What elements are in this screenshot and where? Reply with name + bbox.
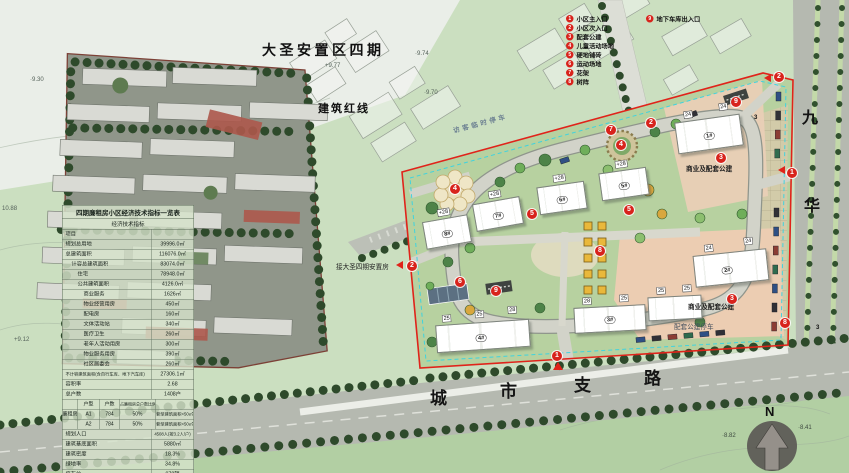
connect-label: 接大圣四期安置房 bbox=[336, 262, 389, 271]
legend-num-icon: 6 bbox=[566, 60, 574, 68]
height-tag: 25 bbox=[620, 294, 630, 302]
entrance-arrow-icon bbox=[396, 261, 403, 269]
entrance-arrow-icon bbox=[764, 74, 771, 82]
elevation-label: ·9.74 bbox=[415, 50, 429, 57]
marker-main-entrance: 1 bbox=[552, 351, 562, 361]
red-line-label: 建筑红线 bbox=[318, 100, 370, 116]
building-label: 2# bbox=[722, 266, 734, 275]
building-label: 4# bbox=[475, 334, 487, 342]
road-name-char: 九 bbox=[802, 104, 818, 128]
table-row: 规划人口4508人(按3.2人/户) bbox=[63, 430, 194, 440]
marker-children-area: 4 bbox=[616, 140, 626, 150]
north-arrow-icon bbox=[747, 421, 797, 471]
legend-num-icon: 4 bbox=[566, 42, 574, 50]
table-unit-header: 户型 户数 占廉租房总户数比例 bbox=[63, 400, 194, 410]
building-label: 6# bbox=[556, 196, 568, 205]
table-row: 医疗卫生260㎡ bbox=[63, 330, 194, 340]
marker-pergola: 7 bbox=[606, 125, 616, 135]
table-row: 项目 bbox=[63, 230, 194, 240]
marker-children-area: 4 bbox=[450, 184, 460, 194]
parcel-number: 3 bbox=[816, 324, 819, 331]
legend-num-icon: 1 bbox=[566, 15, 574, 23]
elevation-label: +9.77 bbox=[325, 62, 340, 69]
elevation-label: +9.12 bbox=[14, 336, 29, 343]
legend-num-icon: 3 bbox=[566, 33, 574, 41]
legend-num-icon: 9 bbox=[646, 15, 654, 23]
table-row: 配电房160㎡ bbox=[63, 310, 194, 320]
page-title: 大圣安置区四期 bbox=[262, 40, 385, 60]
site-plan-canvas: 大圣安置区四期 建筑红线 访客临时停车 接大圣四期安置房 商业及配套公建 商业及… bbox=[0, 0, 849, 473]
table-unit-row: A2 784 50% 套型建筑面积<50㎡ bbox=[63, 420, 194, 430]
building-label: 1# bbox=[703, 131, 715, 140]
legend-num-icon: 7 bbox=[566, 69, 574, 77]
table-row: 住宅78948.0㎡ bbox=[63, 270, 194, 280]
height-tag: 25 bbox=[682, 284, 692, 292]
height-tag: 28 bbox=[582, 297, 592, 305]
marker-garage-entrance: 9 bbox=[491, 286, 501, 296]
height-tag: 25 bbox=[442, 314, 452, 322]
road-name-char: 华 bbox=[804, 192, 820, 216]
table-row: 文体活动站340㎡ bbox=[63, 320, 194, 330]
building-label: 5# bbox=[618, 182, 630, 191]
height-tag: 28 bbox=[508, 306, 518, 314]
marker-paving: 5 bbox=[624, 205, 634, 215]
table-row: 社区居委会260㎡ bbox=[63, 360, 194, 370]
table-row: 建筑基底面积5880㎡ bbox=[63, 440, 194, 450]
table-row: 总建筑面积116076.0㎡ bbox=[63, 250, 194, 260]
building-label: 8# bbox=[441, 229, 453, 238]
marker-main-entrance: 1 bbox=[787, 168, 797, 178]
height-tag: 25 bbox=[656, 287, 666, 295]
marker-garage-entrance: 9 bbox=[731, 97, 741, 107]
table-row: 规划总用地39996.0㎡ bbox=[63, 240, 194, 250]
public-parking-label: 配套公建停车 bbox=[674, 322, 714, 331]
legend-item: 8树阵 bbox=[566, 77, 589, 87]
height-tag: 24 bbox=[718, 102, 728, 111]
height-tag: 25 bbox=[475, 310, 485, 318]
building-3: 28 25 3# bbox=[573, 304, 646, 334]
entrance-arrow-icon bbox=[778, 166, 785, 174]
legend-num-icon: 8 bbox=[566, 78, 574, 86]
economic-indicator-table: 四期廉租房小区经济技术指标一览表 经济技术指标 项目 规划总用地39996.0㎡… bbox=[62, 205, 194, 473]
elevation-label: 10.88 bbox=[2, 205, 17, 212]
entrance-arrow-icon bbox=[553, 362, 563, 370]
table-row: 不计容建筑面积(含自行车库、地下汽车库)27306.1㎡ bbox=[63, 370, 194, 380]
road-name-char: 路 bbox=[644, 364, 661, 389]
table-row: 总户数1408户 bbox=[63, 390, 194, 400]
marker-sports-field: 6 bbox=[455, 277, 465, 287]
table-row: 建筑密度18.3% bbox=[63, 450, 194, 460]
table-row: 公共建筑面积4126.0㎡ bbox=[63, 280, 194, 290]
right-road bbox=[793, 0, 849, 352]
marker-public-building: 3 bbox=[716, 153, 726, 163]
table-row: 物业经营用房450㎡ bbox=[63, 300, 194, 310]
commercial-label-north: 商业及配套公建 bbox=[686, 164, 732, 173]
table-unit-row: 廉租房 A1 784 50% 套型建筑面积<50㎡ bbox=[63, 410, 194, 420]
height-tag: 24 bbox=[683, 110, 693, 119]
table-row: 计容总建筑面积83074.0㎡ bbox=[63, 260, 194, 270]
height-tag: 24 bbox=[744, 237, 754, 245]
marker-secondary-entrance: 2 bbox=[646, 118, 656, 128]
elevation-label: ·8.82 bbox=[722, 432, 736, 439]
marker-secondary-entrance: 2 bbox=[407, 261, 417, 271]
legend-item: 9地下车库出入口 bbox=[646, 14, 700, 24]
elevation-label: ·8.41 bbox=[798, 424, 812, 431]
legend-num-icon: 2 bbox=[566, 24, 574, 32]
marker-tree-array: 8 bbox=[595, 246, 605, 256]
marker-secondary-entrance: 2 bbox=[774, 72, 784, 82]
table-header: 经济技术指标 bbox=[63, 219, 194, 230]
parcel-number: 3 bbox=[754, 114, 757, 121]
road-name-char: 城 bbox=[430, 384, 447, 409]
table-row: 停车位978辆 bbox=[63, 470, 194, 473]
table-row: 物业服务用房390㎡ bbox=[63, 350, 194, 360]
marker-public-building: 3 bbox=[727, 294, 737, 304]
marker-tree-array: 8 bbox=[780, 318, 790, 328]
table-title: 四期廉租房小区经济技术指标一览表 bbox=[63, 206, 194, 219]
height-tag: 24 bbox=[704, 244, 714, 252]
building-label: 7# bbox=[492, 211, 504, 220]
marker-paving: 5 bbox=[527, 209, 537, 219]
building-label: 3# bbox=[604, 316, 616, 324]
road-name-char: 支 bbox=[574, 371, 591, 396]
road-name-char: 市 bbox=[500, 377, 517, 402]
legend-num-icon: 5 bbox=[566, 51, 574, 59]
north-label: N bbox=[765, 404, 774, 419]
table-row: 容积率2.68 bbox=[63, 380, 194, 390]
elevation-label: ·9.70 bbox=[424, 89, 438, 96]
table-row: 老年人活动用房300㎡ bbox=[63, 340, 194, 350]
table-row: 商业服务1626㎡ bbox=[63, 290, 194, 300]
commercial-label-south: 商业及配套公建 bbox=[688, 302, 734, 311]
elevation-label: ·9.30 bbox=[30, 76, 44, 83]
table-row: 绿地率34.8% bbox=[63, 460, 194, 470]
